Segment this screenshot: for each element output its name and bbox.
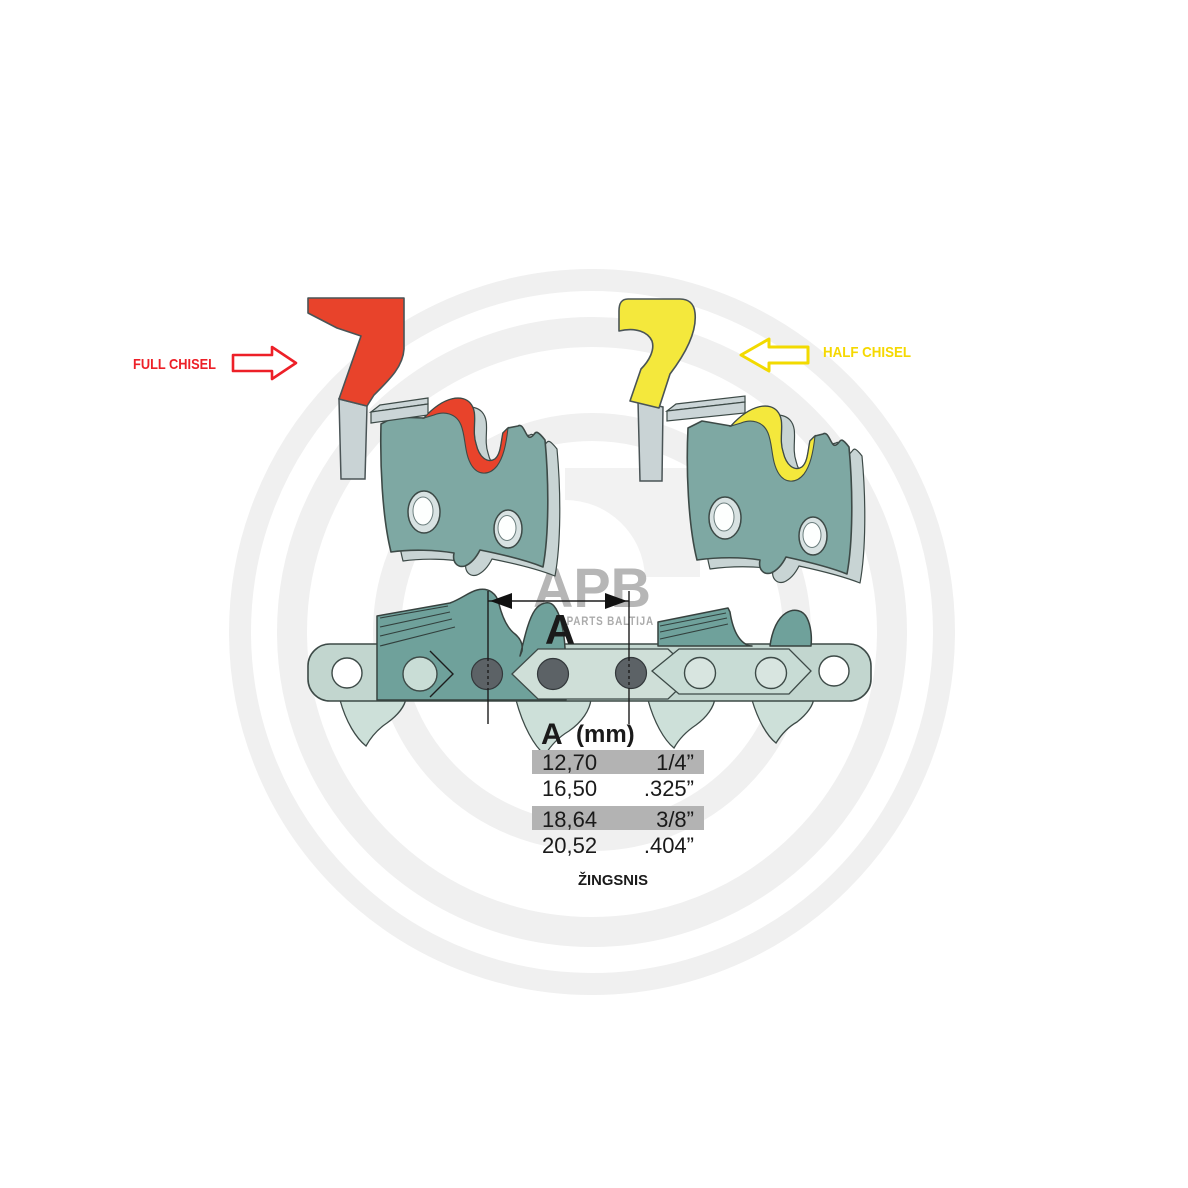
chain-hole-cutter	[403, 657, 437, 691]
pitch-table-caption: ŽINGSNIS	[578, 871, 648, 889]
left-plate-rivet-hole	[413, 497, 433, 525]
pitch-mm-4: 20,52	[542, 833, 597, 858]
pitch-table-row-2: 16,50 .325”	[542, 776, 694, 801]
pitch-table-header-unit: (mm)	[576, 721, 635, 748]
pitch-table-header-letter: A	[541, 718, 563, 751]
pitch-inch-4: .404”	[644, 833, 694, 858]
dimension-letter: A	[545, 606, 575, 653]
right-plate-rivet-hole	[714, 503, 734, 531]
chain-hole-right-2	[756, 658, 787, 689]
pitch-inch-3: 3/8”	[656, 807, 694, 832]
full-chisel-arrow-icon	[233, 347, 296, 379]
pitch-inch-1: 1/4”	[656, 750, 694, 775]
pitch-mm-1: 12,70	[542, 750, 597, 775]
half-chisel-label: HALF CHISEL	[823, 344, 911, 361]
half-chisel-cutter-link	[667, 396, 865, 583]
chain-hole-right-1	[685, 658, 716, 689]
product-diagram-chainsaw-chain: APB AGRO PARTS BALTIJA FULL CHISEL HALF …	[0, 0, 1188, 1188]
half-chisel-blade-shank	[638, 401, 663, 481]
pitch-mm-3: 18,64	[542, 807, 597, 832]
rivet-1	[472, 659, 503, 690]
pitch-inch-2: .325”	[644, 776, 694, 801]
rivet-2	[538, 659, 569, 690]
pitch-mm-2: 16,50	[542, 776, 597, 801]
rivet-3	[616, 658, 647, 689]
full-chisel-label: FULL CHISEL	[133, 356, 216, 373]
half-chisel-blade	[619, 299, 695, 408]
right-tie-strap	[652, 649, 811, 694]
chain-hole-right-white	[819, 656, 849, 686]
right-cutter-tooth	[658, 608, 752, 646]
diagram-canvas: APB AGRO PARTS BALTIJA FULL CHISEL HALF …	[0, 0, 1188, 1188]
full-chisel-blade-shank	[339, 399, 367, 479]
right-cutter-depth-gauge	[770, 610, 811, 646]
left-plate-rivet-hole2	[498, 516, 516, 541]
chain-hole-left-white	[332, 658, 362, 688]
full-chisel-annotation: FULL CHISEL	[133, 347, 296, 379]
right-plate-rivet-hole2	[803, 523, 821, 548]
drive-link-3	[648, 698, 715, 748]
